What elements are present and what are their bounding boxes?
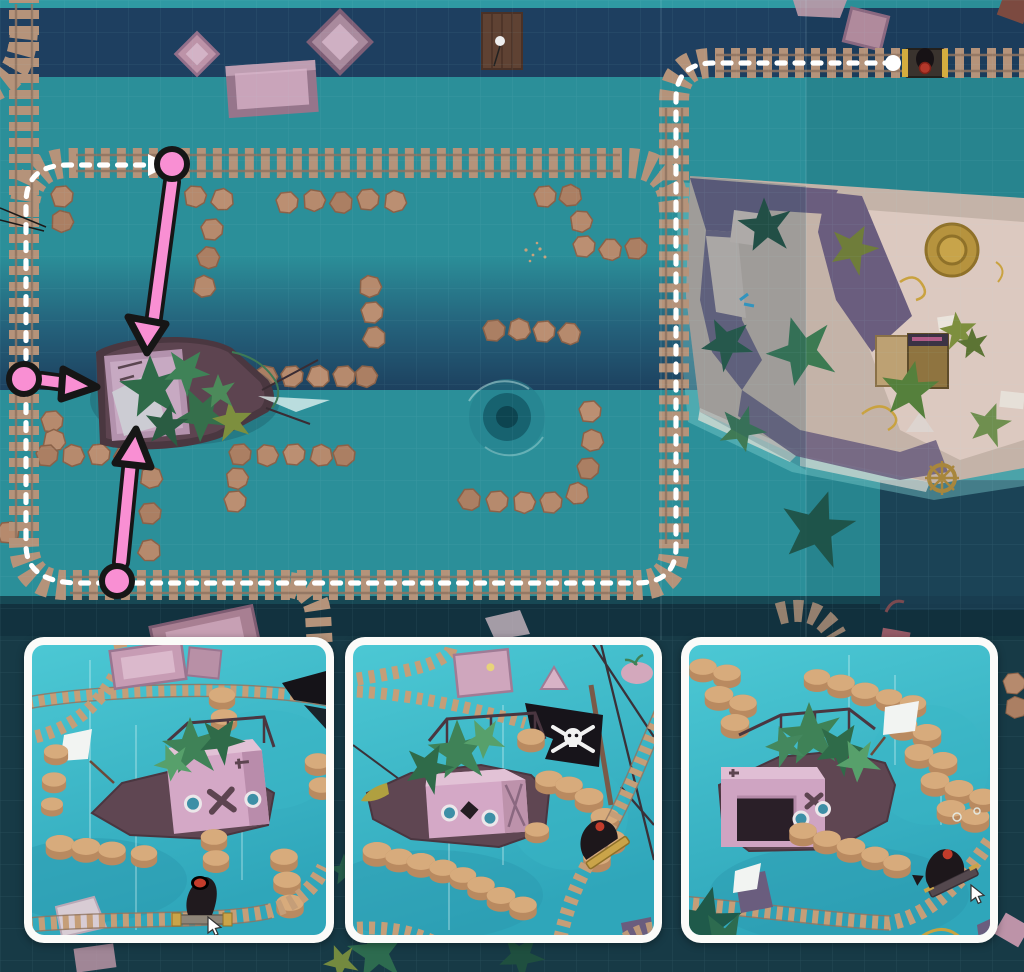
cannon-cart[interactable]: [902, 48, 948, 77]
route-start-dot: [885, 55, 901, 71]
game-screenshot: [0, 0, 1024, 972]
closeup-panel-middle: [345, 637, 662, 943]
closeup-panel-left: [24, 637, 334, 943]
porthole: [185, 795, 201, 811]
open-stern: [737, 797, 795, 841]
closeup-panel-right: [681, 637, 998, 943]
closeup-left-scene: [32, 645, 326, 935]
closeup-middle-scene: [353, 645, 654, 935]
cannon-muzzle: [920, 63, 931, 74]
cannon-muzzle: [194, 879, 206, 888]
closeup-right-scene: [689, 645, 990, 935]
